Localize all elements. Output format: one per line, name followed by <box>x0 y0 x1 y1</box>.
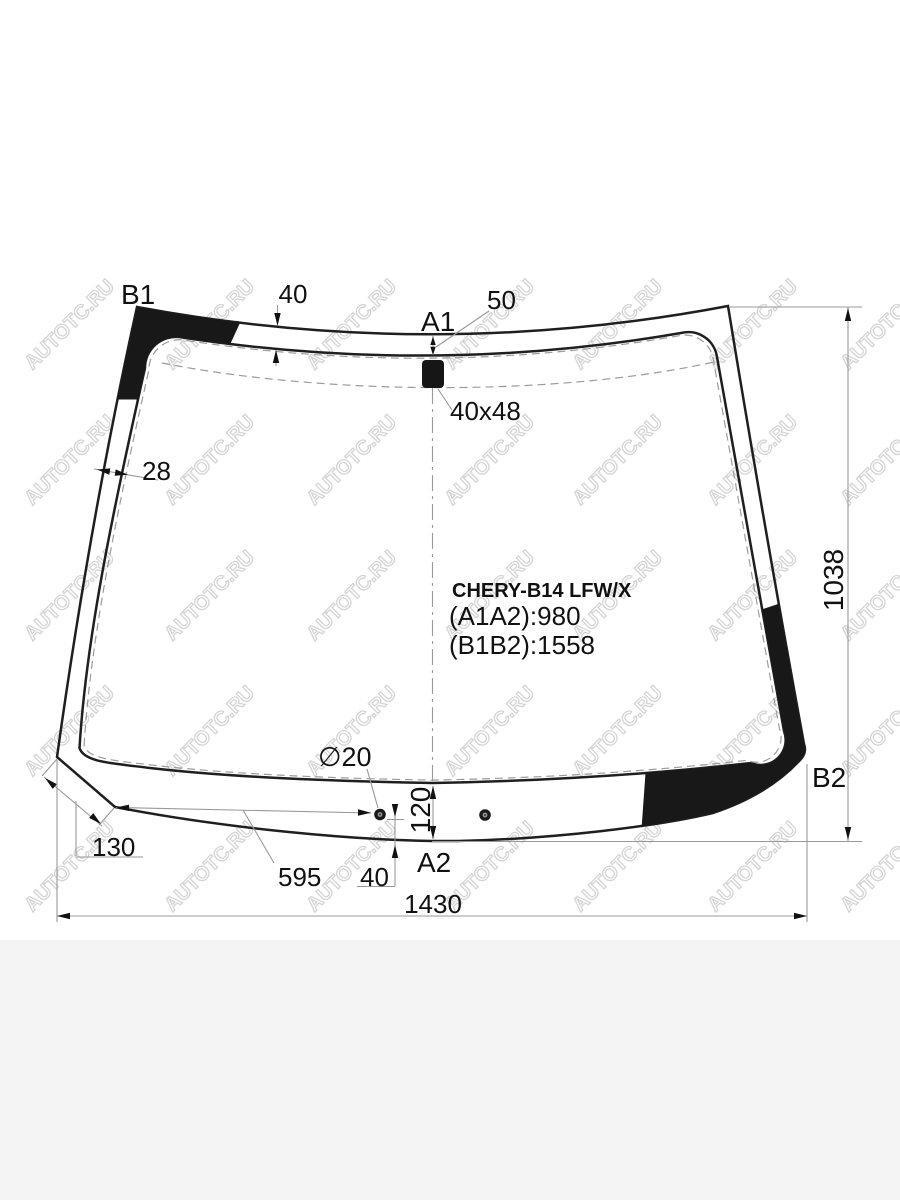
svg-text:40x48: 40x48 <box>450 396 521 426</box>
svg-text:∅20: ∅20 <box>318 742 372 772</box>
svg-text:(B1B2):1558: (B1B2):1558 <box>449 630 595 660</box>
svg-text:(A1A2):980: (A1A2):980 <box>449 601 581 631</box>
svg-text:1038: 1038 <box>818 549 849 611</box>
svg-text:B1: B1 <box>121 279 155 310</box>
svg-text:28: 28 <box>142 456 171 486</box>
svg-text:1430: 1430 <box>404 889 462 919</box>
svg-text:40: 40 <box>279 279 308 309</box>
svg-text:40: 40 <box>360 862 389 892</box>
svg-text:CHERY-B14 LFW/X: CHERY-B14 LFW/X <box>452 580 632 602</box>
svg-text:A1: A1 <box>421 306 455 337</box>
svg-text:120: 120 <box>405 787 436 834</box>
svg-text:130: 130 <box>92 832 135 862</box>
svg-text:50: 50 <box>487 285 516 315</box>
svg-text:595: 595 <box>278 862 321 892</box>
svg-text:B2: B2 <box>812 762 846 793</box>
svg-text:A2: A2 <box>417 847 451 878</box>
